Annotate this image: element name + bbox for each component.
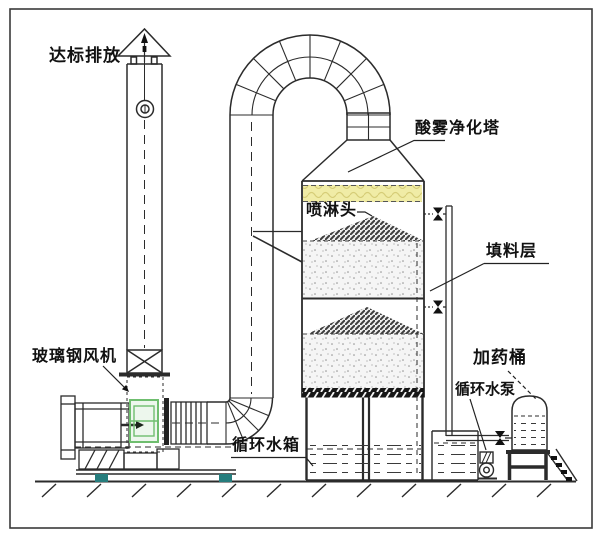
label-water-tank: 循环水箱 xyxy=(232,438,300,455)
circulating-tank xyxy=(306,431,478,480)
tower-leader xyxy=(348,141,445,173)
fan-unit xyxy=(61,377,236,482)
diagram-drawing xyxy=(0,0,601,538)
packing-bed-2 xyxy=(303,334,423,388)
exhaust-stack xyxy=(118,29,170,375)
spray-pipe-valves xyxy=(424,206,512,445)
circulating-pump xyxy=(478,452,497,479)
spray-cone-2 xyxy=(307,307,424,334)
diagram-canvas: 达标排放 酸雾净化塔 喷淋头 填料层 玻璃钢风机 循环水箱 循环水泵 加药桶 c… xyxy=(0,0,601,538)
label-tower: 酸雾净化塔 xyxy=(415,121,500,138)
barrel-liquid xyxy=(514,418,545,448)
outlet-flange xyxy=(164,398,169,445)
tower-hood xyxy=(302,140,347,181)
packing-bed-1 xyxy=(303,241,423,298)
valve-icon xyxy=(495,431,505,438)
label-water-pump: 循环水泵 xyxy=(455,382,515,398)
packing-leader xyxy=(430,264,484,292)
label-spray-head: 喷淋头 xyxy=(306,203,357,220)
fan-leader xyxy=(103,366,125,388)
dosing-barrel-group xyxy=(506,396,577,481)
tank-water xyxy=(307,439,421,478)
label-packing-layer: 填料层 xyxy=(486,244,537,261)
mount-foot xyxy=(219,474,232,482)
label-dosing-barrel: 加药桶 xyxy=(473,349,527,367)
mount-foot xyxy=(95,474,108,482)
valve-icon xyxy=(433,301,443,308)
ground xyxy=(35,482,576,498)
pump-body xyxy=(480,463,494,477)
valve-icon xyxy=(433,208,443,215)
support-grate xyxy=(302,388,424,398)
label-emission: 达标排放 xyxy=(49,47,121,65)
spray-head-leader xyxy=(357,212,372,216)
label-fan: 玻璃钢风机 xyxy=(32,349,117,366)
